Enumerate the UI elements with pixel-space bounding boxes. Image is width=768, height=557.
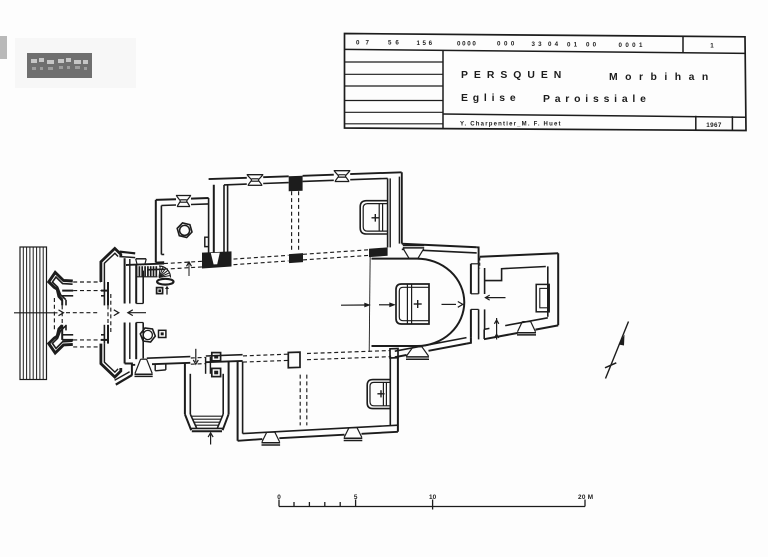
svg-text:01: 01 bbox=[567, 41, 580, 48]
svg-text:1967: 1967 bbox=[706, 122, 722, 129]
svg-text:000: 000 bbox=[497, 41, 518, 48]
svg-text:156: 156 bbox=[417, 40, 435, 47]
svg-text:20 M: 20 M bbox=[578, 494, 593, 501]
svg-text:10: 10 bbox=[429, 494, 437, 501]
svg-text:33: 33 bbox=[532, 41, 545, 48]
svg-text:0001: 0001 bbox=[619, 42, 646, 49]
svg-text:1: 1 bbox=[710, 43, 714, 50]
svg-text:00: 00 bbox=[586, 42, 599, 49]
svg-text:Eglise: Eglise bbox=[461, 93, 520, 104]
svg-text:PERSQUEN: PERSQUEN bbox=[461, 70, 567, 81]
svg-text:0000: 0000 bbox=[457, 40, 478, 47]
svg-text:Y. Charpentier_M. F. Huet: Y. Charpentier_M. F. Huet bbox=[460, 122, 562, 128]
svg-text:Morbihan: Morbihan bbox=[609, 72, 716, 83]
svg-text:56: 56 bbox=[388, 40, 403, 47]
svg-text:5: 5 bbox=[354, 494, 358, 501]
svg-text:07: 07 bbox=[356, 39, 375, 46]
svg-text:0: 0 bbox=[277, 494, 281, 501]
svg-text:Paroissiale: Paroissiale bbox=[543, 94, 651, 105]
svg-text:04: 04 bbox=[548, 41, 561, 48]
